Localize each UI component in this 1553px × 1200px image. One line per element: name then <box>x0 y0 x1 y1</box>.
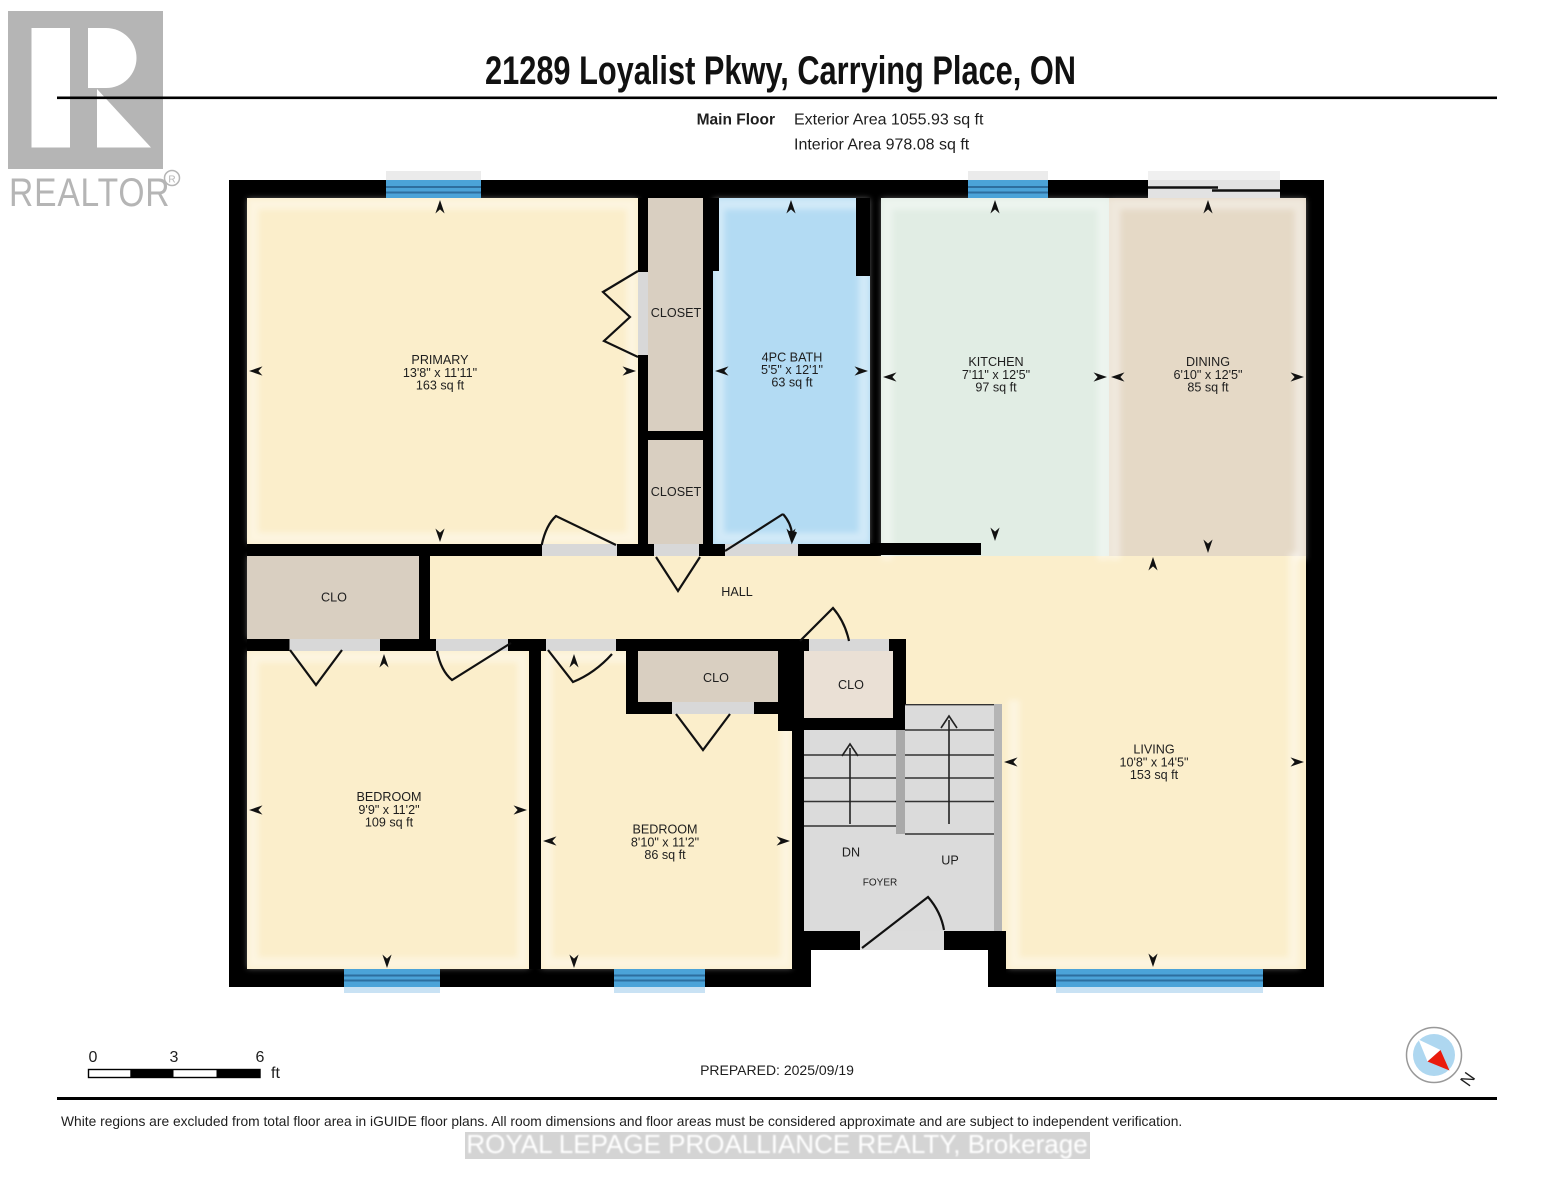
svg-text:Interior Area 978.08 sq ft: Interior Area 978.08 sq ft <box>794 137 970 154</box>
svg-text:BEDROOM: BEDROOM <box>356 790 421 804</box>
svg-text:PREPARED: 2025/09/19: PREPARED: 2025/09/19 <box>700 1062 854 1078</box>
svg-text:HALL: HALL <box>721 585 753 599</box>
svg-text:163 sq ft: 163 sq ft <box>416 379 465 393</box>
svg-text:Exterior Area 1055.93 sq ft: Exterior Area 1055.93 sq ft <box>794 112 984 129</box>
svg-text:109 sq ft: 109 sq ft <box>365 816 414 830</box>
svg-text:CLO: CLO <box>838 678 864 692</box>
svg-text:BEDROOM: BEDROOM <box>632 823 697 837</box>
svg-text:6: 6 <box>256 1049 265 1066</box>
svg-text:DN: DN <box>842 846 860 860</box>
svg-text:CLOSET: CLOSET <box>651 306 702 320</box>
svg-text:KITCHEN: KITCHEN <box>968 355 1023 369</box>
svg-text:REALTOR: REALTOR <box>9 170 170 214</box>
svg-text:N: N <box>1457 1069 1480 1090</box>
svg-text:CLOSET: CLOSET <box>651 485 702 499</box>
svg-text:R: R <box>168 175 175 186</box>
svg-text:63 sq ft: 63 sq ft <box>771 376 813 390</box>
svg-text:97 sq ft: 97 sq ft <box>975 381 1017 395</box>
svg-text:ft: ft <box>271 1065 280 1082</box>
svg-text:DINING: DINING <box>1186 355 1230 369</box>
svg-text:Main Floor: Main Floor <box>697 112 775 129</box>
svg-text:FOYER: FOYER <box>863 878 897 889</box>
svg-text:3: 3 <box>170 1049 179 1066</box>
svg-text:85 sq ft: 85 sq ft <box>1187 381 1229 395</box>
svg-text:0: 0 <box>89 1049 98 1066</box>
svg-text:UP: UP <box>941 854 959 868</box>
svg-text:PRIMARY: PRIMARY <box>411 353 469 367</box>
svg-text:21289 Loyalist Pkwy, Carrying: 21289 Loyalist Pkwy, Carrying Place, ON <box>485 49 1076 93</box>
svg-text:153 sq ft: 153 sq ft <box>1130 768 1179 782</box>
svg-text:CLO: CLO <box>321 591 347 605</box>
svg-text:LIVING: LIVING <box>1133 743 1174 757</box>
svg-text:ROYAL LEPAGE PROALLIANCE REALT: ROYAL LEPAGE PROALLIANCE REALTY, Brokera… <box>466 1129 1087 1159</box>
svg-text:86 sq ft: 86 sq ft <box>644 848 686 862</box>
svg-text:White regions are excluded fro: White regions are excluded from total fl… <box>61 1114 1182 1129</box>
svg-text:CLO: CLO <box>703 671 729 685</box>
